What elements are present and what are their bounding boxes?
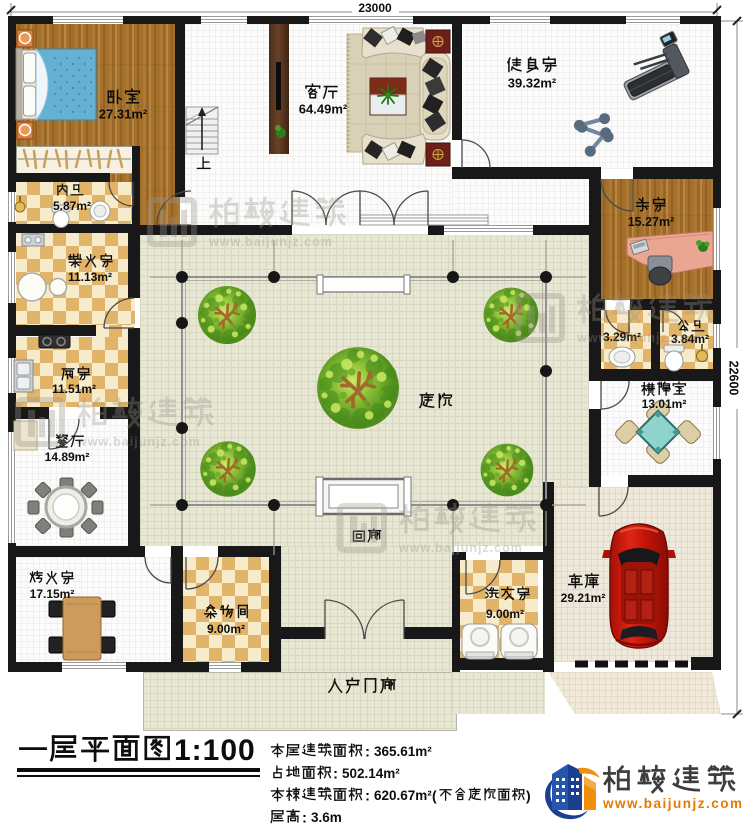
svg-text:502.14m²: 502.14m² (342, 766, 400, 781)
svg-text::: : (333, 766, 338, 783)
svg-text:(: ( (432, 788, 437, 804)
svg-text::: : (302, 810, 307, 827)
svg-text:www.baijunjz.com: www.baijunjz.com (576, 331, 701, 345)
svg-text:www.baijunjz.com: www.baijunjz.com (208, 235, 333, 249)
svg-text:620.67m²: 620.67m² (374, 788, 432, 803)
svg-text::: : (365, 788, 370, 805)
svg-text:www.baijunjz.com: www.baijunjz.com (398, 541, 523, 555)
svg-text:www.baijunjz.com: www.baijunjz.com (602, 796, 744, 811)
svg-text:365.61m²: 365.61m² (374, 744, 432, 759)
svg-text:1:100: 1:100 (174, 734, 256, 767)
svg-text:www.baijunjz.com: www.baijunjz.com (76, 435, 201, 449)
svg-text:3.6m: 3.6m (311, 810, 342, 825)
svg-text:): ) (526, 788, 531, 804)
svg-text::: : (365, 744, 370, 761)
